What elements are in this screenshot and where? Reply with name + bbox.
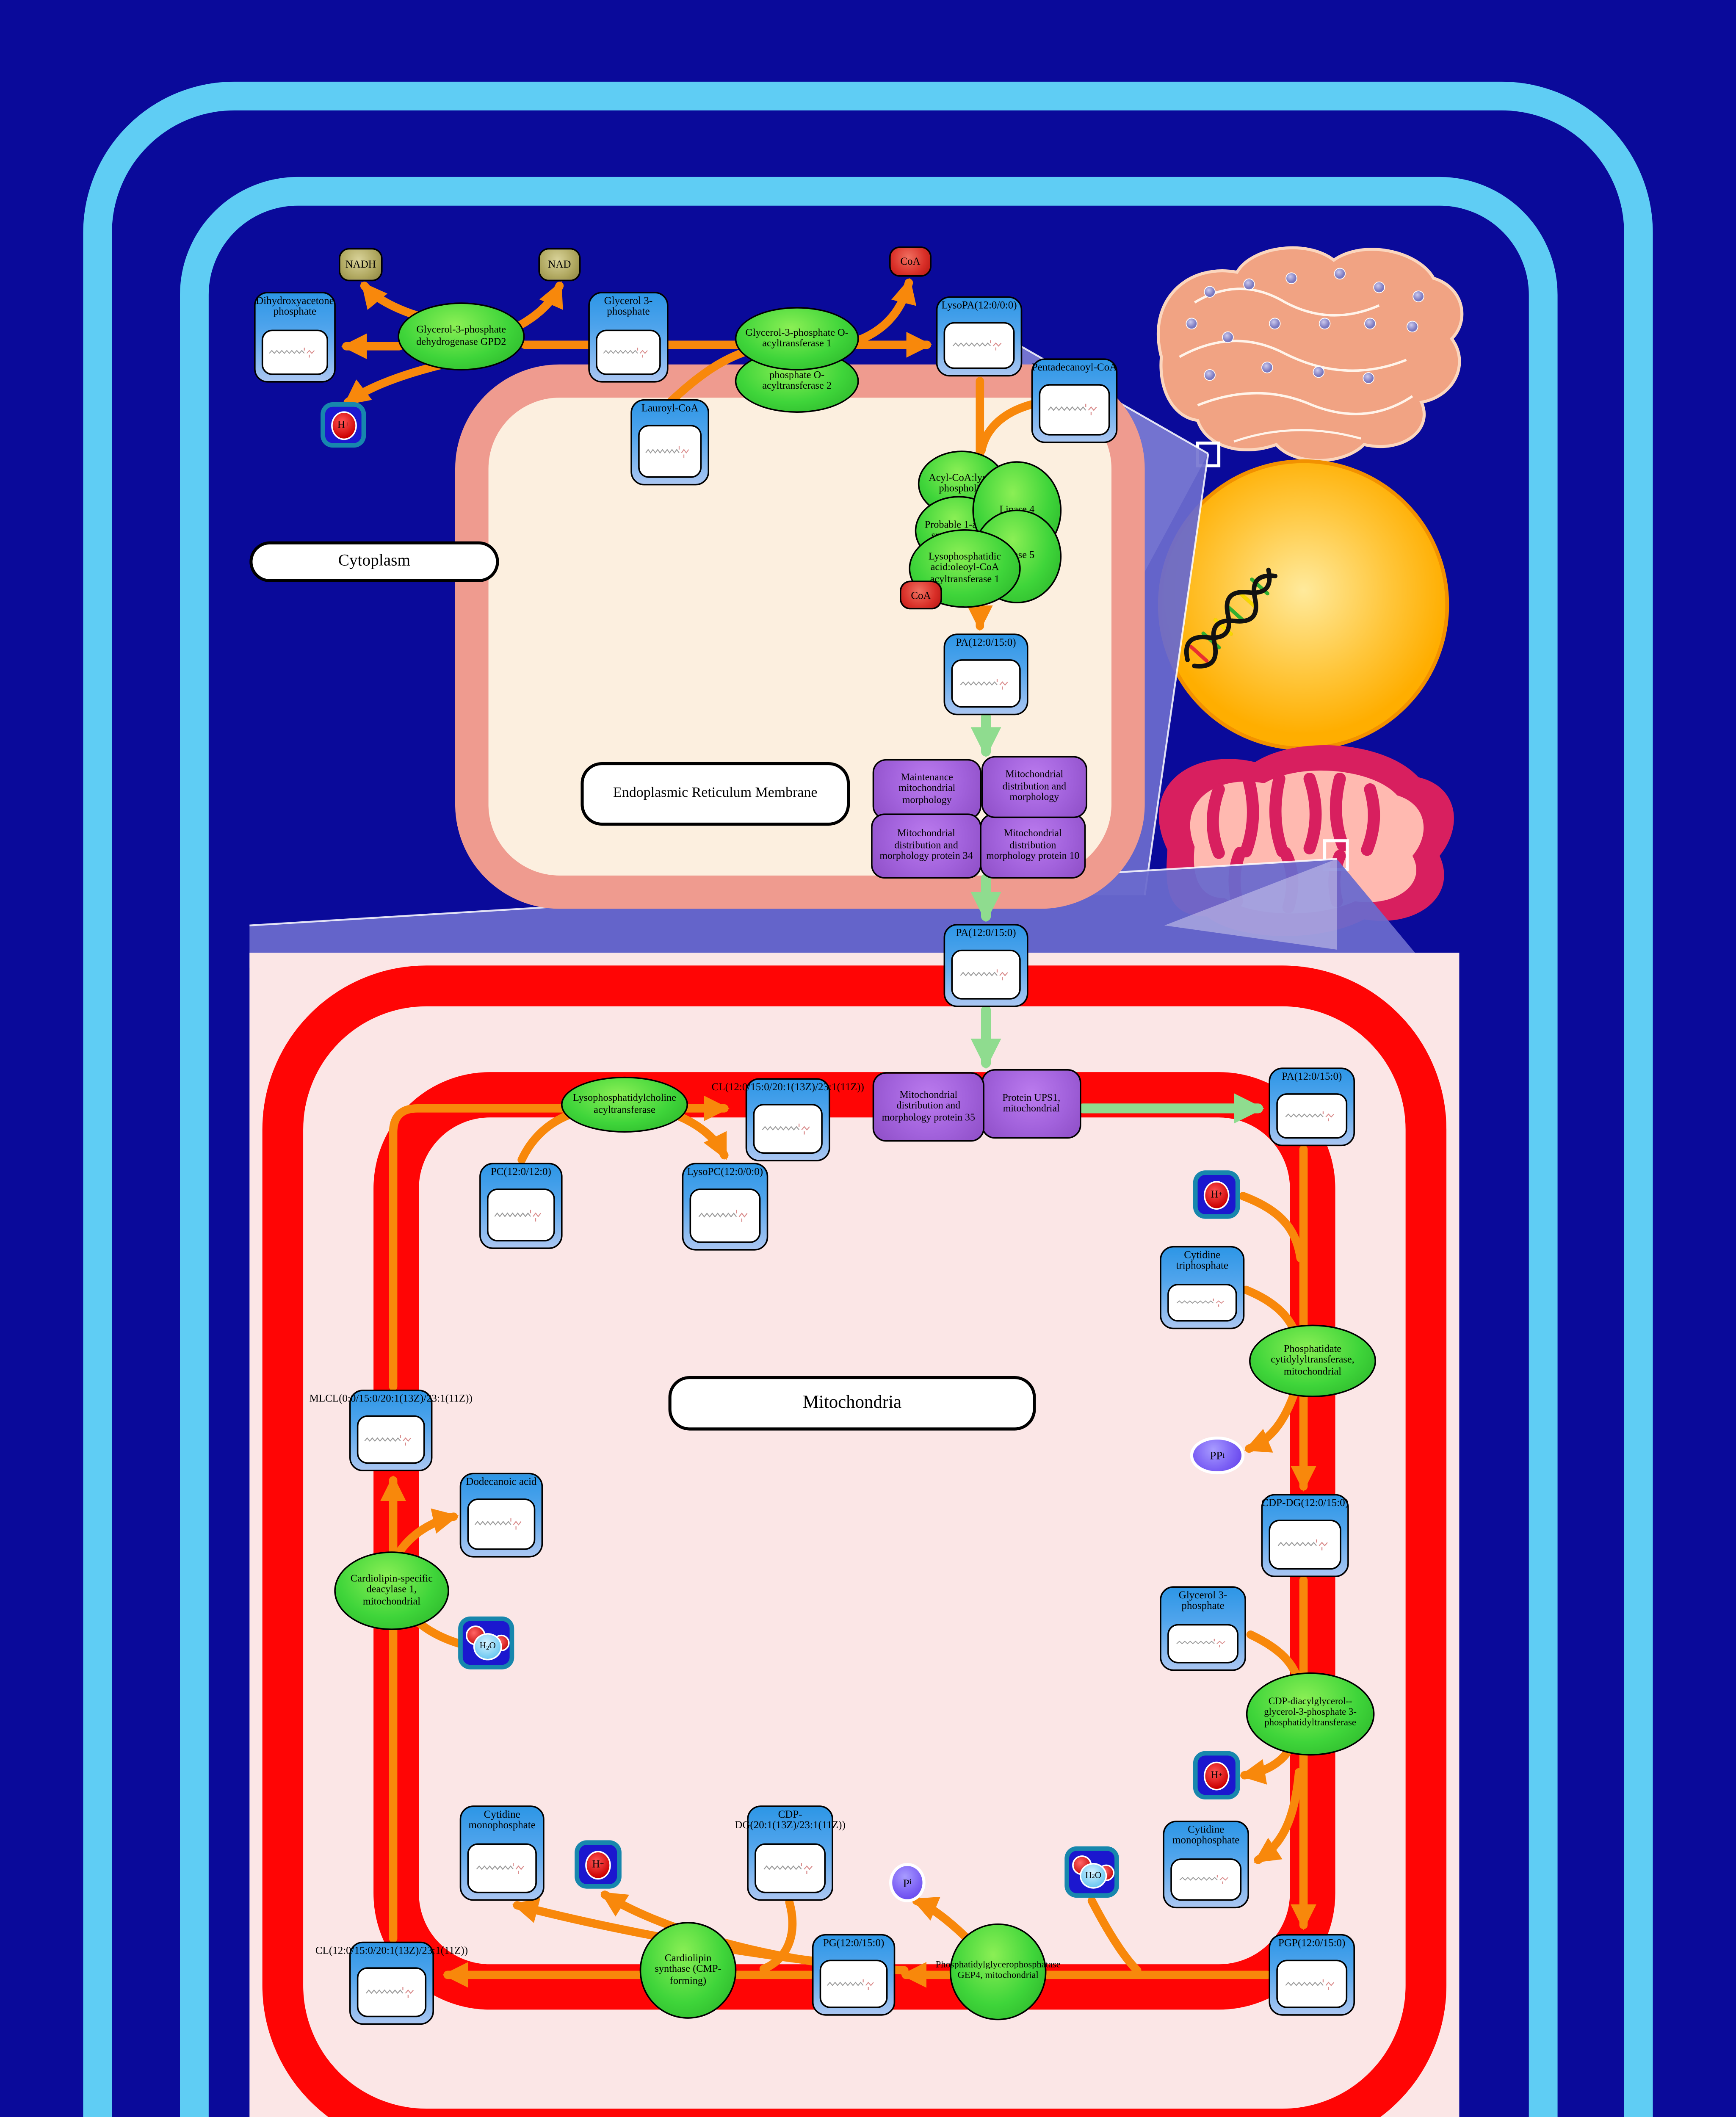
enzyme-label: Cardiolipin synthase (CMP-forming): [646, 1954, 730, 1986]
metabolite-pentadecanoyl-coa[interactable]: Pentadecanoyl-CoA: [1031, 358, 1118, 443]
metabolite-dhap[interactable]: Dihydroxyacetone phosphate: [254, 292, 336, 382]
metabolite-lauroyl-coa[interactable]: Lauroyl-CoA: [630, 399, 709, 486]
metabolite-ppi[interactable]: PPi: [1190, 1437, 1245, 1474]
metabolite-nad[interactable]: NAD: [538, 248, 581, 282]
metabolite-label: Glycerol 3-phosphate: [1161, 1591, 1244, 1613]
structure-sketch: [596, 330, 661, 375]
metabolite-nadh[interactable]: NADH: [339, 248, 383, 282]
structure-sketch: [1167, 1284, 1237, 1321]
enzyme-gpd2[interactable]: Glycerol-3-phosphate dehydrogenase GPD2: [398, 302, 525, 370]
metabolite-label: PGP(12:0/15:0): [1278, 1939, 1345, 1950]
metabolite-label: Cytidine triphosphate: [1161, 1251, 1243, 1273]
metabolite-pa-transfer[interactable]: PA(12:0/15:0): [944, 924, 1028, 1007]
water-frame: H2O: [1069, 1851, 1114, 1893]
structure-sketch: [357, 1415, 425, 1464]
metabolite-water-left[interactable]: H2O: [458, 1617, 514, 1669]
structure-sketch: [951, 659, 1020, 708]
enzyme-label: Glycerol-3-phosphate O-acyltransferase 1: [741, 328, 853, 350]
structure-sketch: [638, 425, 702, 478]
protein-label: Mitochondrial distribution and morpholog…: [876, 829, 977, 863]
compartment-label-cytoplasm: Cytoplasm: [249, 542, 499, 582]
metabolite-label: PA(12:0/15:0): [1270, 1072, 1353, 1083]
metabolite-glycerol-3-phosphate-er[interactable]: Glycerol 3-phosphate: [588, 292, 668, 382]
water-symbol: H2O: [473, 1633, 502, 1660]
structure-sketch: [1269, 1520, 1341, 1570]
structure-sketch: [467, 1498, 536, 1550]
protein-label: Mitochondrial distribution and morpholog…: [877, 1090, 980, 1124]
structure-sketch: [467, 1843, 537, 1893]
metabolite-ctp[interactable]: Cytidine triphosphate: [1160, 1246, 1244, 1329]
enzyme-label: Phosphatidylglycerophosphatase GEP4, mit…: [936, 1962, 1061, 1982]
metabolite-coa-top[interactable]: CoA: [889, 246, 932, 276]
metabolite-coa-2[interactable]: CoA: [900, 580, 942, 609]
protein-label: Mitochondrial distribution and morpholog…: [986, 770, 1083, 804]
metabolite-glycerol-3-phosphate-mito[interactable]: Glycerol 3-phosphate: [1160, 1586, 1246, 1671]
hydron-frame: H+: [579, 1845, 617, 1884]
metabolite-pg[interactable]: PG(12:0/15:0): [812, 1934, 895, 2016]
metabolite-label: Cytidine monophosphate: [461, 1810, 543, 1832]
mitochondria-text: Mitochondria: [803, 1393, 901, 1414]
coa-label: CoA: [900, 256, 920, 268]
protein-mdm34[interactable]: Mitochondrial distribution and morpholog…: [871, 813, 981, 879]
metabolite-label: CL(12:0/15:0/20:1(13Z)/23:1(11Z)): [315, 1946, 468, 1957]
metabolite-hydron[interactable]: H+: [321, 402, 366, 448]
metabolite-pa-mito[interactable]: PA(12:0/15:0): [1269, 1067, 1355, 1146]
metabolite-cmp-left[interactable]: Cytidine monophosphate: [460, 1805, 545, 1901]
enzyme-gep4[interactable]: Phosphatidylglycerophosphatase GEP4, mit…: [950, 1924, 1047, 2020]
metabolite-cdp-dg-2[interactable]: CDP- DG(20:1(13Z)/23:1(11Z)): [747, 1805, 833, 1901]
protein-mdm35[interactable]: Mitochondrial distribution and morpholog…: [873, 1072, 984, 1141]
metabolite-hydron-right1[interactable]: H+: [1193, 1170, 1240, 1219]
metabolite-cdp-dg-1[interactable]: CDP-DG(12:0/15:0): [1261, 1494, 1349, 1577]
metabolite-label: LysoPA(12:0/0:0): [941, 301, 1017, 312]
nucleus-image: [1160, 461, 1447, 749]
metabolite-mlcl[interactable]: MLCL(0:0/15:0/20:1(13Z)/23:1(11Z)): [349, 1390, 432, 1471]
metabolite-pa-er[interactable]: PA(12:0/15:0): [944, 633, 1028, 715]
metabolite-label: PC(12:0/12:0): [491, 1167, 551, 1178]
metabolite-label: CDP- DG(20:1(13Z)/23:1(11Z)): [735, 1810, 846, 1832]
structure-sketch: [1276, 1960, 1347, 2008]
enzyme-cardiolipin-deacylase[interactable]: Cardiolipin-specific deacylase 1, mitoch…: [334, 1551, 449, 1630]
protein-mmm1[interactable]: Maintenance mitochondrial morphology: [873, 759, 981, 820]
er-membrane-text: Endoplasmic Reticulum Membrane: [613, 785, 817, 802]
metabolite-label: Glycerol 3-phosphate: [590, 296, 667, 319]
metabolite-pi[interactable]: Pi: [889, 1863, 926, 1902]
structure-sketch: [487, 1188, 555, 1241]
metabolite-cl-bottom[interactable]: CL(12:0/15:0/20:1(13Z)/23:1(11Z)): [349, 1942, 434, 2025]
structure-sketch: [357, 1967, 426, 2017]
hydron-frame: H+: [325, 407, 362, 443]
water-frame: H2O: [463, 1621, 510, 1665]
metabolite-label: CL(12:0/15:0/20:1(13Z)/23:1(11Z)): [712, 1083, 864, 1094]
protein-mdm10[interactable]: Mitochondrial distribution morphology pr…: [980, 813, 1086, 879]
compartment-label-er-membrane: Endoplasmic Reticulum Membrane: [581, 762, 850, 826]
structure-sketch: [1170, 1858, 1241, 1901]
structure-sketch: [944, 322, 1015, 369]
metabolite-cmp-right[interactable]: Cytidine monophosphate: [1163, 1821, 1249, 1908]
protein-ups1[interactable]: Protein UPS1, mitochondrial: [981, 1069, 1081, 1139]
metabolite-hydron-right2[interactable]: H+: [1193, 1751, 1240, 1799]
structure-sketch: [951, 950, 1020, 1000]
enzyme-label: Cardiolipin-specific deacylase 1, mitoch…: [340, 1575, 443, 1607]
coa-label: CoA: [911, 589, 931, 601]
metabolite-label: Pentadecanoyl-CoA: [1032, 363, 1117, 374]
hydron-symbol: H+: [1204, 1761, 1230, 1790]
structure-sketch: [262, 330, 328, 375]
enzyme-label: Lysophosphatidylcholine acyltransferase: [567, 1094, 682, 1115]
structure-sketch: [690, 1188, 761, 1243]
metabolite-dodecanoic-acid[interactable]: Dodecanoic acid: [460, 1473, 543, 1558]
nadh-label: NADH: [346, 259, 376, 271]
metabolite-lysopc[interactable]: LysoPC(12:0/0:0): [682, 1163, 768, 1250]
enzyme-gpat1[interactable]: Glycerol-3-phosphate O-acyltransferase 1: [735, 307, 859, 370]
metabolite-hydron-bottom[interactable]: H+: [575, 1840, 622, 1888]
metabolite-label: PA(12:0/15:0): [945, 638, 1027, 649]
metabolite-label: LysoPC(12:0/0:0): [687, 1167, 763, 1178]
protein-label: Protein UPS1, mitochondrial: [986, 1093, 1077, 1115]
hydron-symbol: H+: [1204, 1180, 1230, 1209]
water-symbol: H2O: [1080, 1863, 1107, 1889]
metabolite-label: PG(12:0/15:0): [823, 1939, 884, 1950]
metabolite-label: PA(12:0/15:0): [945, 929, 1027, 940]
structure-sketch: [1167, 1624, 1238, 1664]
er-organelle-image: [1158, 248, 1462, 466]
structure-sketch: [1039, 384, 1110, 435]
pathway-canvas: Cytoplasm Endoplasmic Reticulum Membrane…: [0, 0, 1736, 2117]
enzyme-phosphatidate-cytidylyltransferase[interactable]: Phosphatidate cytidylyltransferase, mito…: [1249, 1325, 1376, 1397]
metabolite-label: Lauroyl-CoA: [632, 404, 708, 415]
metabolite-label: Cytidine monophosphate: [1164, 1825, 1247, 1848]
protein-mdm12[interactable]: Mitochondrial distribution and morpholog…: [981, 756, 1087, 818]
metabolite-label: Dihydroxyacetone phosphate: [256, 296, 334, 319]
enzyme-label: CDP-diacylglycerol--glycerol-3-phosphate…: [1252, 1699, 1368, 1729]
hydron-frame: H+: [1198, 1175, 1236, 1214]
metabolite-label: MLCL(0:0/15:0/20:1(13Z)/23:1(11Z)): [310, 1394, 473, 1405]
metabolite-water-mid[interactable]: H2O: [1064, 1846, 1119, 1898]
structure-sketch: [820, 1960, 888, 2008]
hydron-symbol: H+: [585, 1850, 611, 1879]
metabolite-label: CDP-DG(12:0/15:0): [1261, 1498, 1349, 1509]
protein-label: Mitochondrial distribution morphology pr…: [984, 829, 1081, 863]
metabolite-pgp[interactable]: PGP(12:0/15:0): [1269, 1934, 1355, 2016]
enzyme-label: Glycerol-3-phosphate dehydrogenase GPD2: [404, 326, 519, 347]
enzyme-label: Lysophosphatidic acid:oleoyl-CoA acyltra…: [915, 553, 1015, 585]
hydron-symbol: H+: [330, 411, 356, 439]
metabolite-lysopa[interactable]: LysoPA(12:0/0:0): [936, 296, 1023, 376]
compartment-label-mitochondria: Mitochondria: [669, 1376, 1036, 1431]
structure-sketch: [755, 1843, 826, 1893]
protein-label: Maintenance mitochondrial morphology: [877, 773, 977, 806]
structure-sketch: [1276, 1093, 1347, 1139]
enzyme-pgp-synthase[interactable]: CDP-diacylglycerol--glycerol-3-phosphate…: [1246, 1672, 1375, 1755]
metabolite-cl-top[interactable]: CL(12:0/15:0/20:1(13Z)/23:1(11Z)): [746, 1078, 830, 1161]
enzyme-label: Phosphatidate cytidylyltransferase, mito…: [1255, 1345, 1370, 1377]
enzyme-lpcat[interactable]: Lysophosphatidylcholine acyltransferase: [561, 1077, 688, 1133]
structure-sketch: [753, 1104, 823, 1154]
metabolite-label: Dodecanoic acid: [461, 1477, 541, 1488]
hydron-frame: H+: [1198, 1755, 1236, 1795]
enzyme-label: phosphate O-acyltransferase 2: [741, 370, 853, 392]
metabolite-pc[interactable]: PC(12:0/12:0): [479, 1163, 562, 1249]
cytoplasm-text: Cytoplasm: [338, 552, 410, 571]
nad-label: NAD: [548, 259, 571, 271]
enzyme-cardiolipin-synthase[interactable]: Cardiolipin synthase (CMP-forming): [640, 1922, 737, 2019]
